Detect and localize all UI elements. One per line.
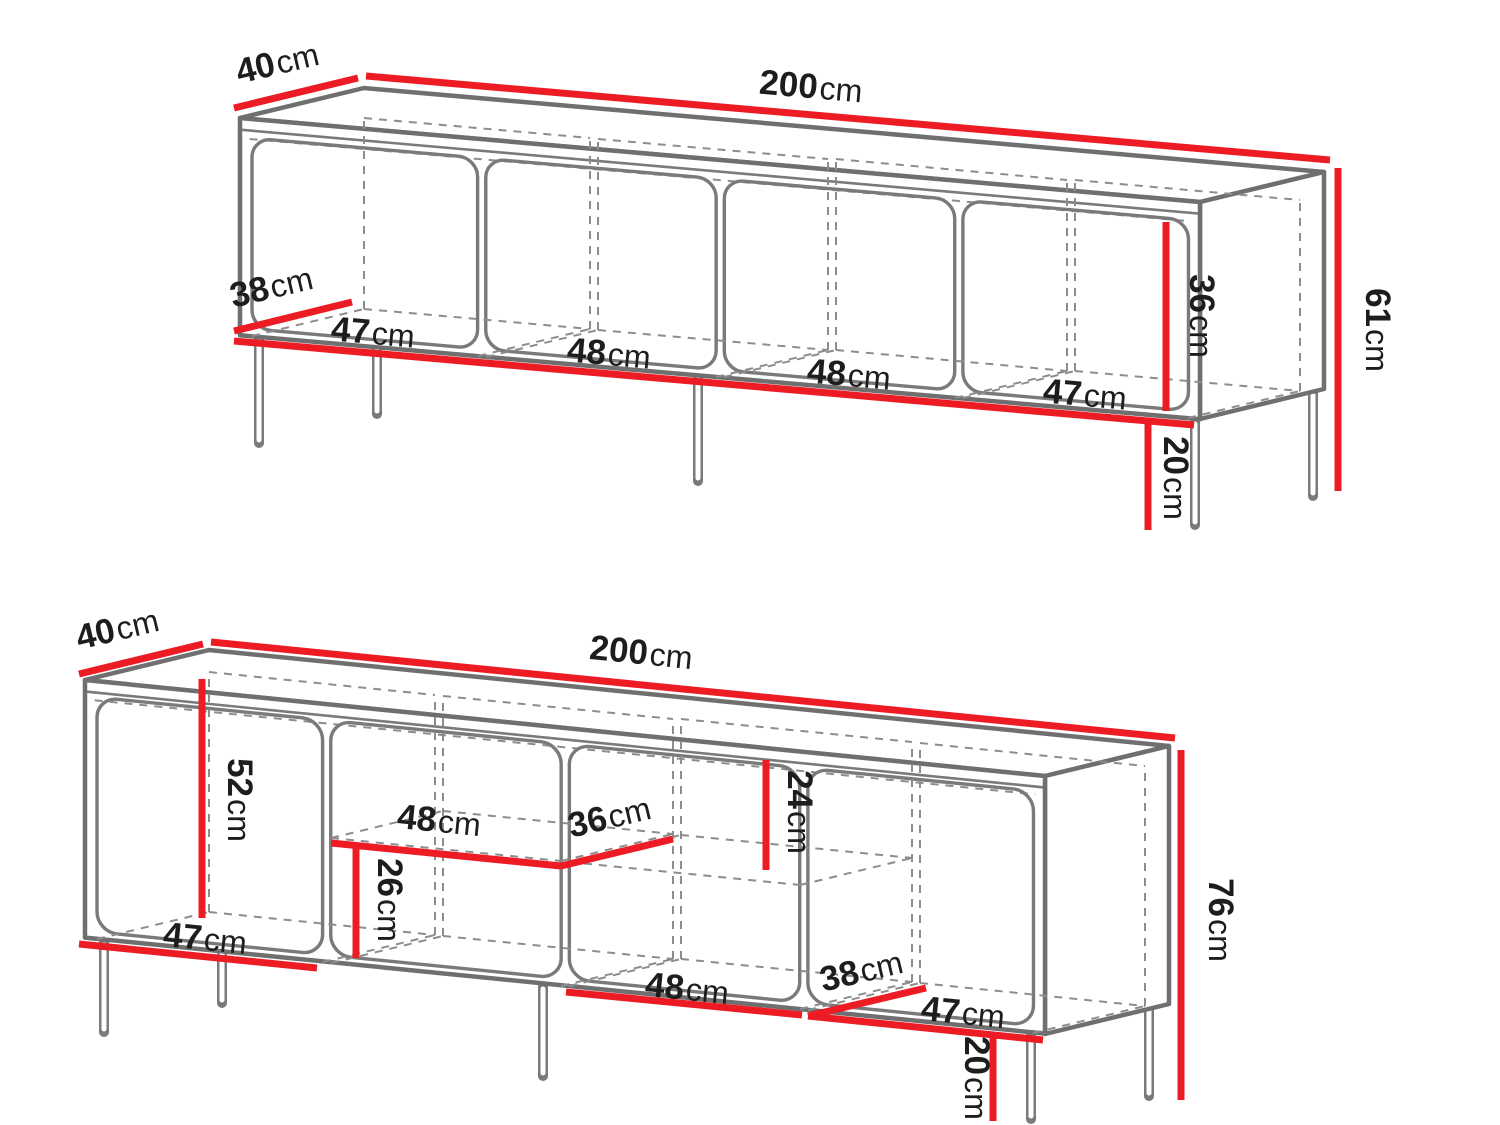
top-cabinet: 40cm 200cm 61cm 20cm 38cm 36cm 47cm 48cm… [226,34,1397,530]
label-bottom-leg-height: 20cm [957,1036,996,1120]
label-bottom-depth: 40cm [72,600,163,657]
label-bottom-total-height: 76cm [1201,878,1240,962]
bottom-cabinet-side-face [1045,746,1169,1034]
label-bottom-width: 200cm [588,628,695,677]
label-top-width: 200cm [758,63,864,111]
label-bottom-interior-height: 52cm [220,758,259,842]
label-top-depth: 40cm [232,34,323,91]
label-above-shelf-height: 24cm [780,770,819,854]
label-below-shelf-height: 26cm [370,858,409,942]
furniture-dimension-diagram: 40cm 200cm 61cm 20cm 38cm 36cm 47cm 48cm… [0,0,1500,1125]
label-top-total-height: 61cm [1358,288,1397,372]
bottom-cabinet: 40cm 200cm 76cm 20cm 52cm 47cm 48cm 38cm… [72,600,1240,1121]
label-top-interior-height: 36cm [1182,274,1221,358]
label-top-leg-height: 20cm [1156,436,1195,520]
diagram-canvas: 40cm 200cm 61cm 20cm 38cm 36cm 47cm 48cm… [0,0,1500,1125]
